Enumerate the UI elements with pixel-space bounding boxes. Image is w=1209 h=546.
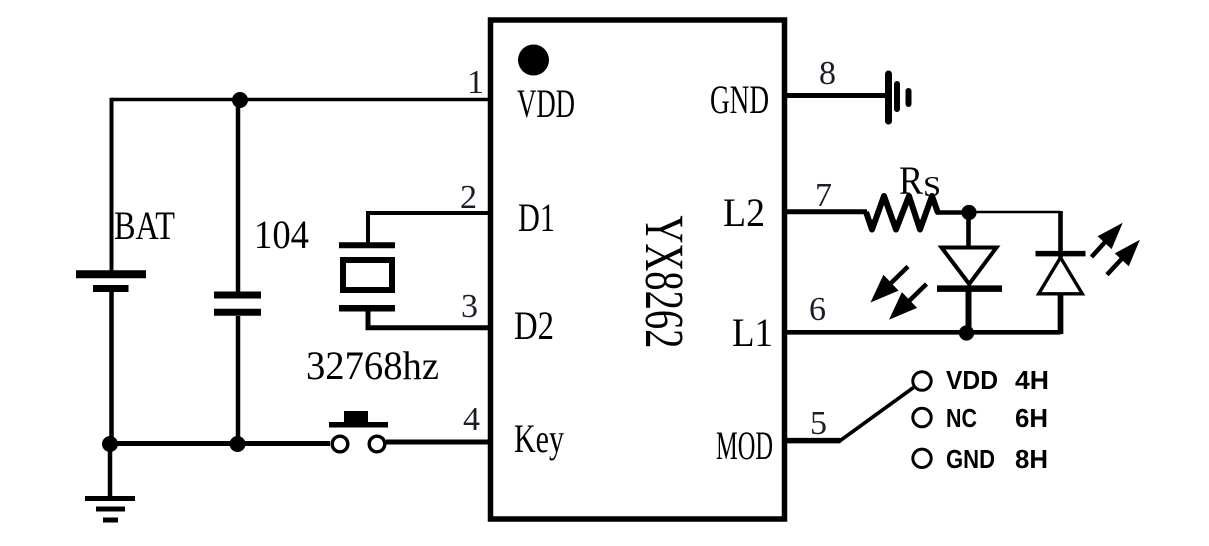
svg-text:GND: GND <box>946 444 995 474</box>
svg-text:7: 7 <box>815 177 832 214</box>
svg-text:S: S <box>923 171 941 203</box>
svg-text:L1: L1 <box>732 310 773 355</box>
svg-text:R: R <box>899 158 923 203</box>
svg-text:Key: Key <box>514 416 564 461</box>
svg-text:104: 104 <box>254 212 309 257</box>
svg-text:D1: D1 <box>518 195 555 240</box>
svg-text:1: 1 <box>467 64 484 101</box>
svg-text:BAT: BAT <box>114 203 175 248</box>
svg-text:6: 6 <box>809 291 826 328</box>
svg-text:YX8262: YX8262 <box>634 216 695 349</box>
svg-text:2: 2 <box>460 179 477 216</box>
svg-text:D2: D2 <box>514 303 554 348</box>
svg-text:32768hz: 32768hz <box>306 343 439 388</box>
svg-text:6H: 6H <box>1015 403 1048 433</box>
svg-text:MOD: MOD <box>716 423 773 468</box>
svg-text:4: 4 <box>463 401 480 438</box>
svg-text:VDD: VDD <box>517 81 575 126</box>
svg-text:L2: L2 <box>723 190 765 235</box>
svg-text:3: 3 <box>461 288 478 325</box>
svg-text:GND: GND <box>710 77 769 122</box>
svg-text:VDD: VDD <box>946 365 998 395</box>
svg-text:8H: 8H <box>1015 444 1048 474</box>
svg-text:8: 8 <box>819 55 836 92</box>
svg-text:NC: NC <box>946 403 977 433</box>
svg-text:4H: 4H <box>1015 365 1049 395</box>
svg-text:5: 5 <box>810 405 827 442</box>
